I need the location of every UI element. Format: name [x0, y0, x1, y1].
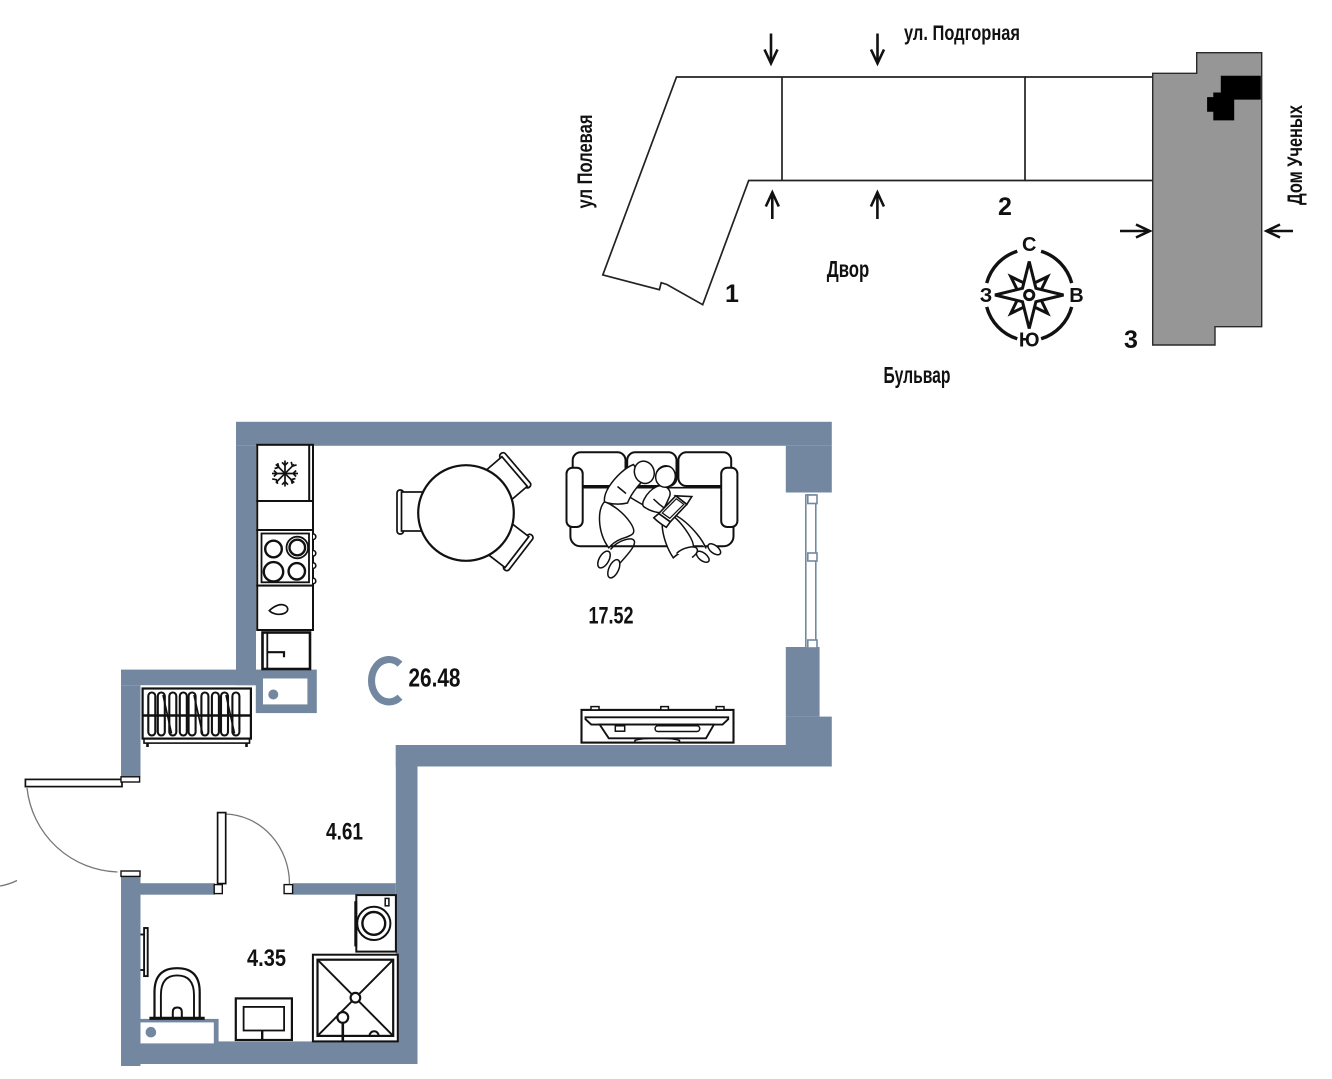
svg-text:З: З	[980, 285, 993, 307]
svg-text:3: 3	[1124, 326, 1138, 354]
svg-text:Дом Ученых: Дом Ученых	[1284, 105, 1307, 205]
svg-text:2: 2	[998, 193, 1012, 221]
svg-text:26.48: 26.48	[409, 662, 461, 692]
svg-text:1: 1	[725, 280, 739, 308]
svg-text:ул Полевая: ул Полевая	[574, 115, 597, 209]
svg-text:В: В	[1069, 285, 1083, 307]
svg-text:С: С	[1022, 234, 1036, 256]
svg-text:Ю: Ю	[1019, 330, 1040, 352]
svg-text:4.61: 4.61	[326, 819, 363, 846]
svg-text:4.35: 4.35	[247, 945, 286, 972]
svg-text:17.52: 17.52	[589, 603, 634, 630]
svg-text:ул. Подгорная: ул. Подгорная	[904, 22, 1020, 45]
svg-text:Двор: Двор	[827, 256, 870, 282]
svg-text:Бульвар: Бульвар	[884, 362, 951, 388]
